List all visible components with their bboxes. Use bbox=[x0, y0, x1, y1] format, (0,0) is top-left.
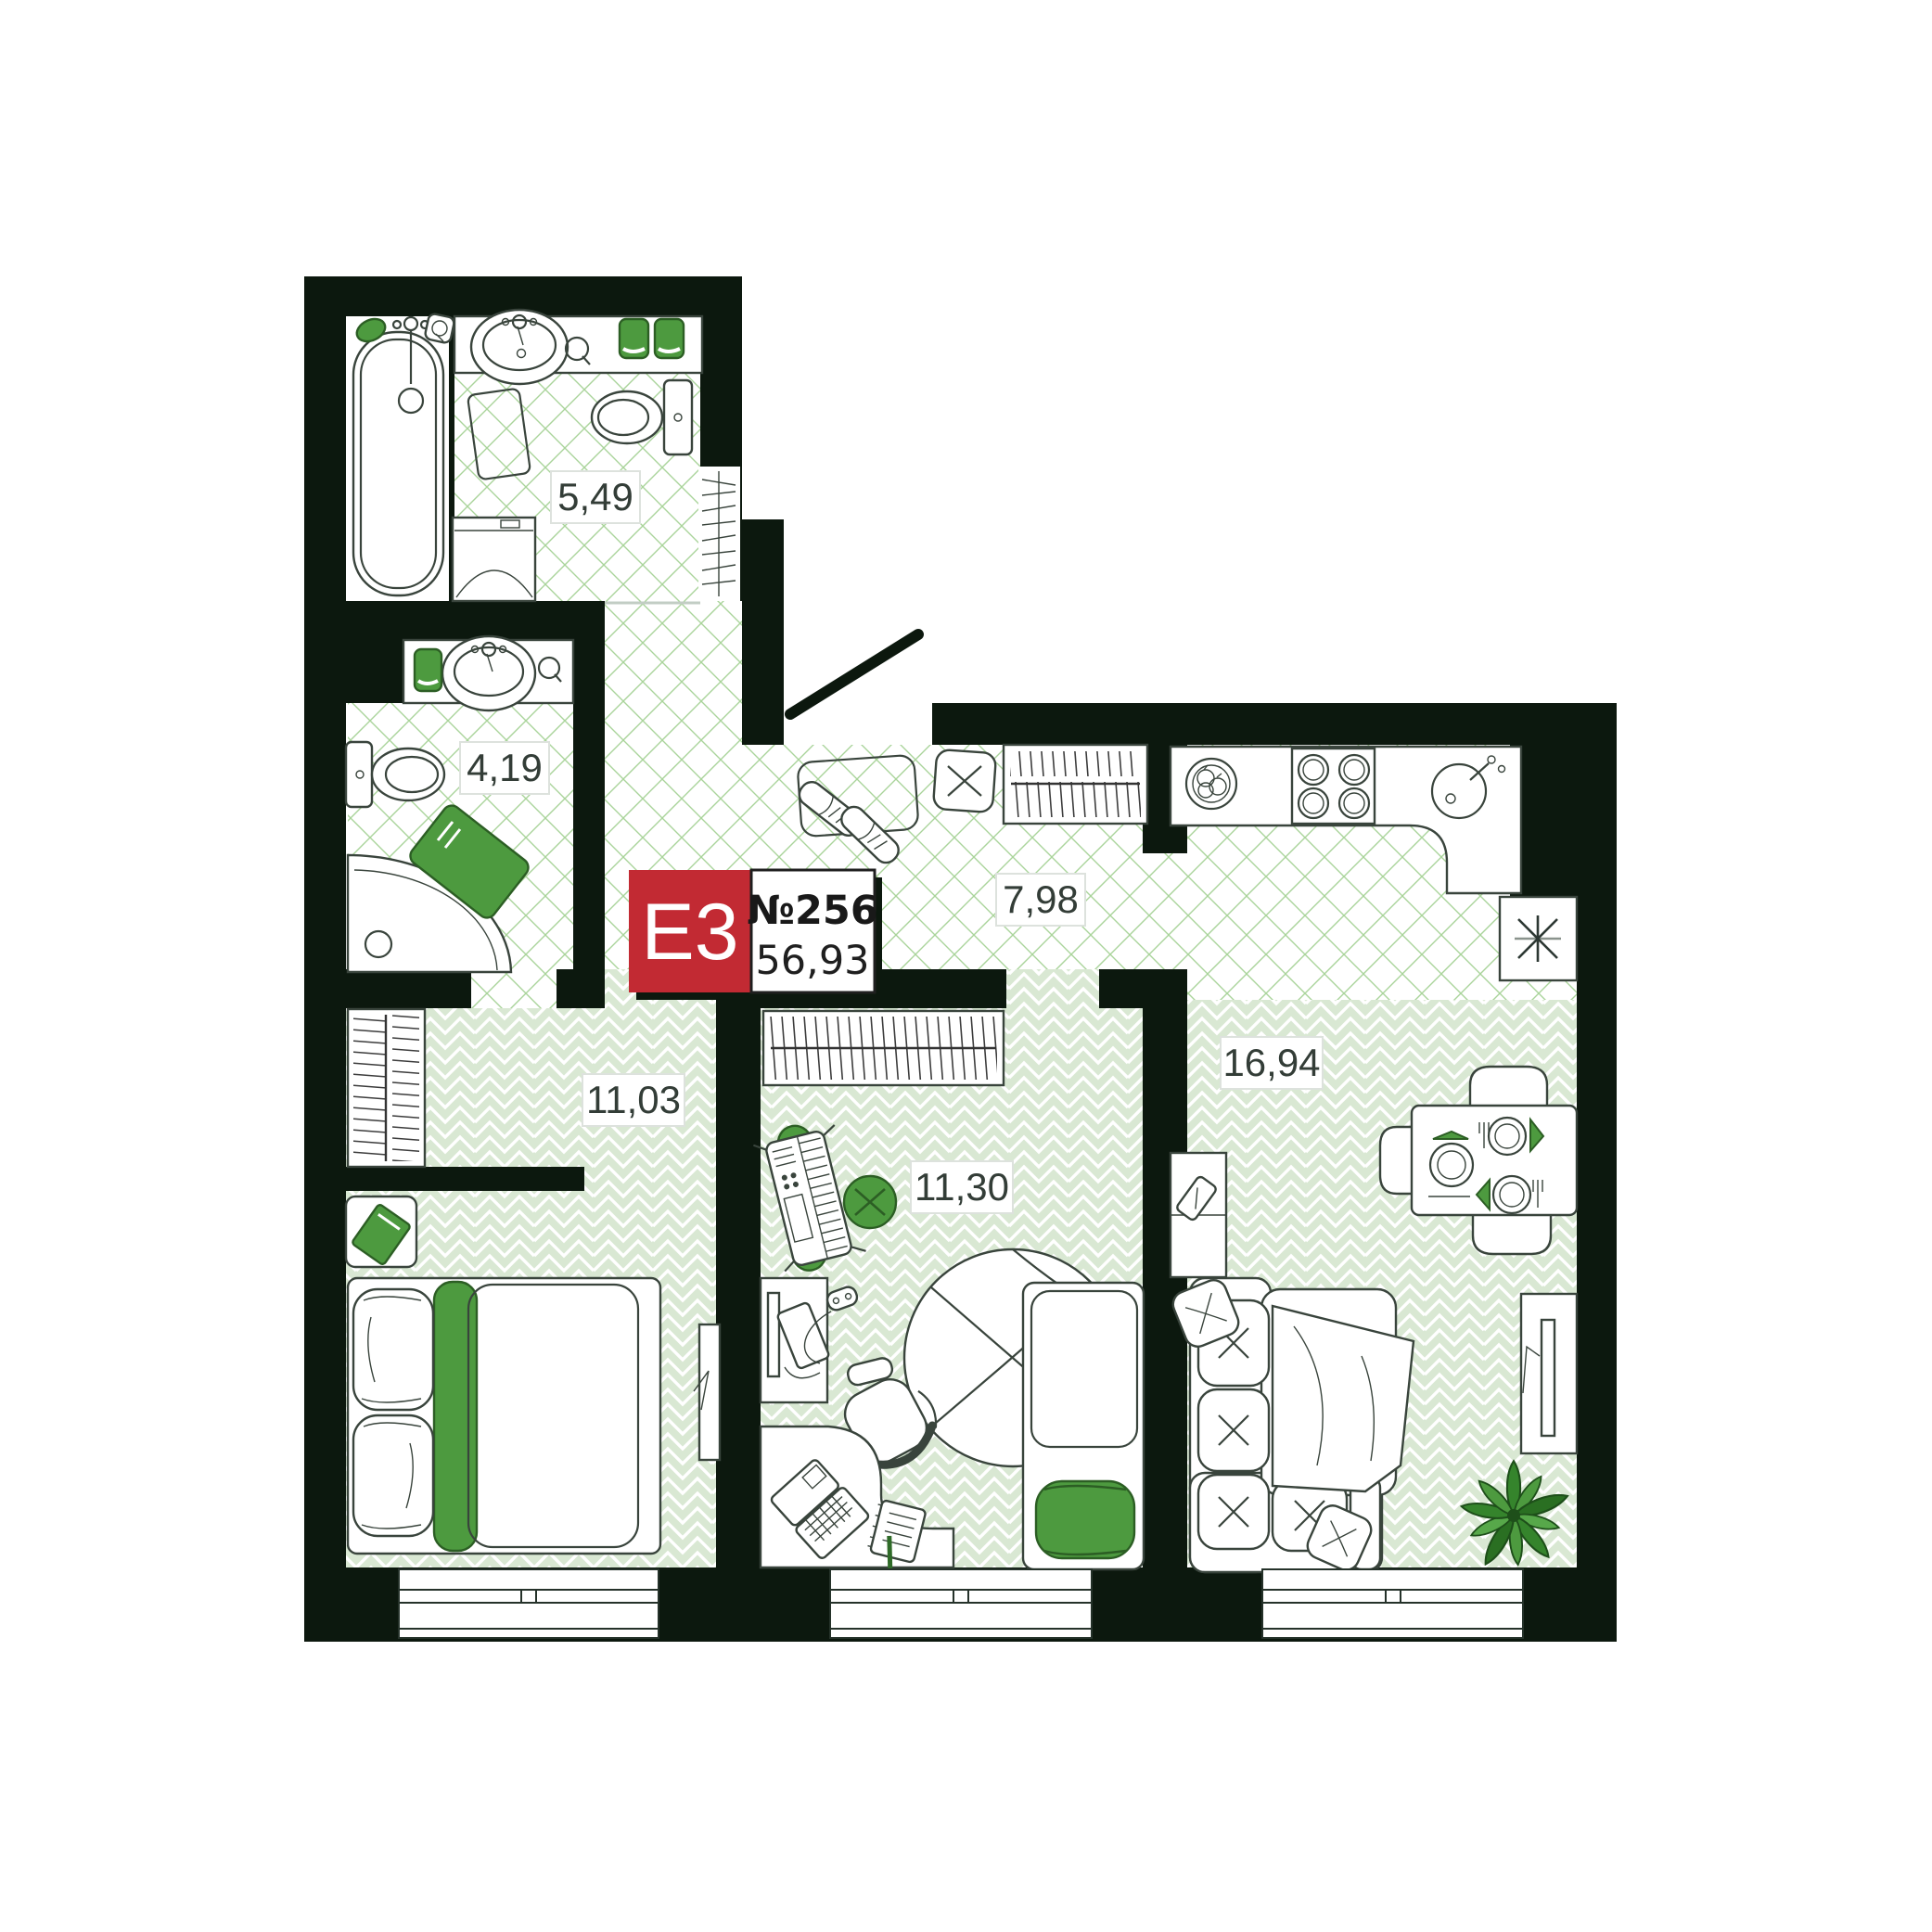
unit-badge[interactable]: Е3 №256 56,93 bbox=[629, 870, 882, 1000]
badge-type-label: Е3 bbox=[641, 888, 738, 977]
room-label: 5,49 bbox=[551, 471, 640, 523]
wall-bedroom-partition bbox=[325, 1167, 584, 1191]
window-icon bbox=[399, 1569, 659, 1638]
kids-pillow-icon bbox=[1036, 1481, 1134, 1558]
wall-kitchen-top bbox=[932, 703, 1617, 745]
wall-bedroom-kids bbox=[716, 1008, 761, 1567]
wall-hall-bottom-b bbox=[1099, 969, 1147, 1008]
wall-bedroom-top-a bbox=[304, 969, 471, 1008]
room-label: 16,94 bbox=[1221, 1037, 1323, 1089]
floorplan-svg: 5,49 bbox=[0, 0, 1932, 1932]
living-kitchen-area: 16,94 bbox=[1222, 1041, 1320, 1084]
hallway-area: 7,98 bbox=[1003, 877, 1079, 921]
wall-bedroom-top-b bbox=[557, 969, 605, 1008]
kids-wardrobe-icon bbox=[763, 1011, 1004, 1085]
wall-left bbox=[304, 276, 346, 1642]
nightstand-icon bbox=[346, 1196, 416, 1267]
wall-corridor bbox=[573, 601, 605, 1008]
double-bed-icon bbox=[348, 1278, 660, 1554]
wall-right-thick bbox=[1510, 745, 1617, 897]
room-label: 4,19 bbox=[460, 742, 549, 794]
guest-sink-icon bbox=[403, 636, 573, 710]
wall-vestibule bbox=[742, 519, 784, 745]
floorplan-card[interactable]: 5,49 bbox=[0, 0, 1932, 1932]
dining-chair-icon bbox=[1380, 1127, 1414, 1194]
radiator-icon bbox=[698, 467, 740, 601]
window-icon bbox=[1262, 1569, 1523, 1638]
headboard bbox=[434, 1282, 477, 1551]
bathroom-main-area: 5,49 bbox=[557, 475, 633, 518]
side-cabinet-icon bbox=[1171, 1153, 1226, 1277]
monitor-desk-icon bbox=[761, 1278, 830, 1402]
washing-machine-icon bbox=[453, 518, 535, 601]
sofa-icon bbox=[1170, 1276, 1414, 1574]
kids-room-area: 11,30 bbox=[915, 1165, 1009, 1209]
wall-right bbox=[1577, 897, 1617, 1642]
stove-icon bbox=[1292, 748, 1375, 824]
badge-number-label: №256 bbox=[747, 888, 878, 934]
dining-chair-icon bbox=[1473, 1215, 1551, 1254]
pouf-icon bbox=[844, 1176, 896, 1228]
hall-wardrobe-icon bbox=[1004, 745, 1147, 824]
bath-sink-icon bbox=[454, 310, 702, 384]
towel-icon bbox=[415, 649, 441, 691]
room-label: 7,98 bbox=[996, 874, 1085, 926]
stool-icon bbox=[933, 749, 996, 812]
dining-chair-icon bbox=[1470, 1067, 1547, 1106]
shower-head-icon bbox=[424, 313, 454, 343]
bathtub-icon bbox=[353, 313, 455, 595]
entry-door-icon bbox=[790, 634, 918, 714]
room-label: 11,30 bbox=[911, 1161, 1013, 1213]
bathroom-guest-area: 4,19 bbox=[467, 746, 543, 789]
bedroom-wardrobe-icon bbox=[348, 1009, 425, 1167]
window-icon bbox=[830, 1569, 1092, 1638]
fridge-icon bbox=[1500, 897, 1577, 980]
kids-bed-icon bbox=[1023, 1283, 1144, 1569]
bedroom-area: 11,03 bbox=[586, 1078, 681, 1121]
room-label: 11,03 bbox=[582, 1074, 685, 1126]
wall-bath-notch bbox=[304, 601, 403, 703]
tv-icon bbox=[1521, 1294, 1577, 1453]
windows bbox=[399, 1569, 1523, 1638]
badge-area-label: 56,93 bbox=[755, 938, 869, 984]
